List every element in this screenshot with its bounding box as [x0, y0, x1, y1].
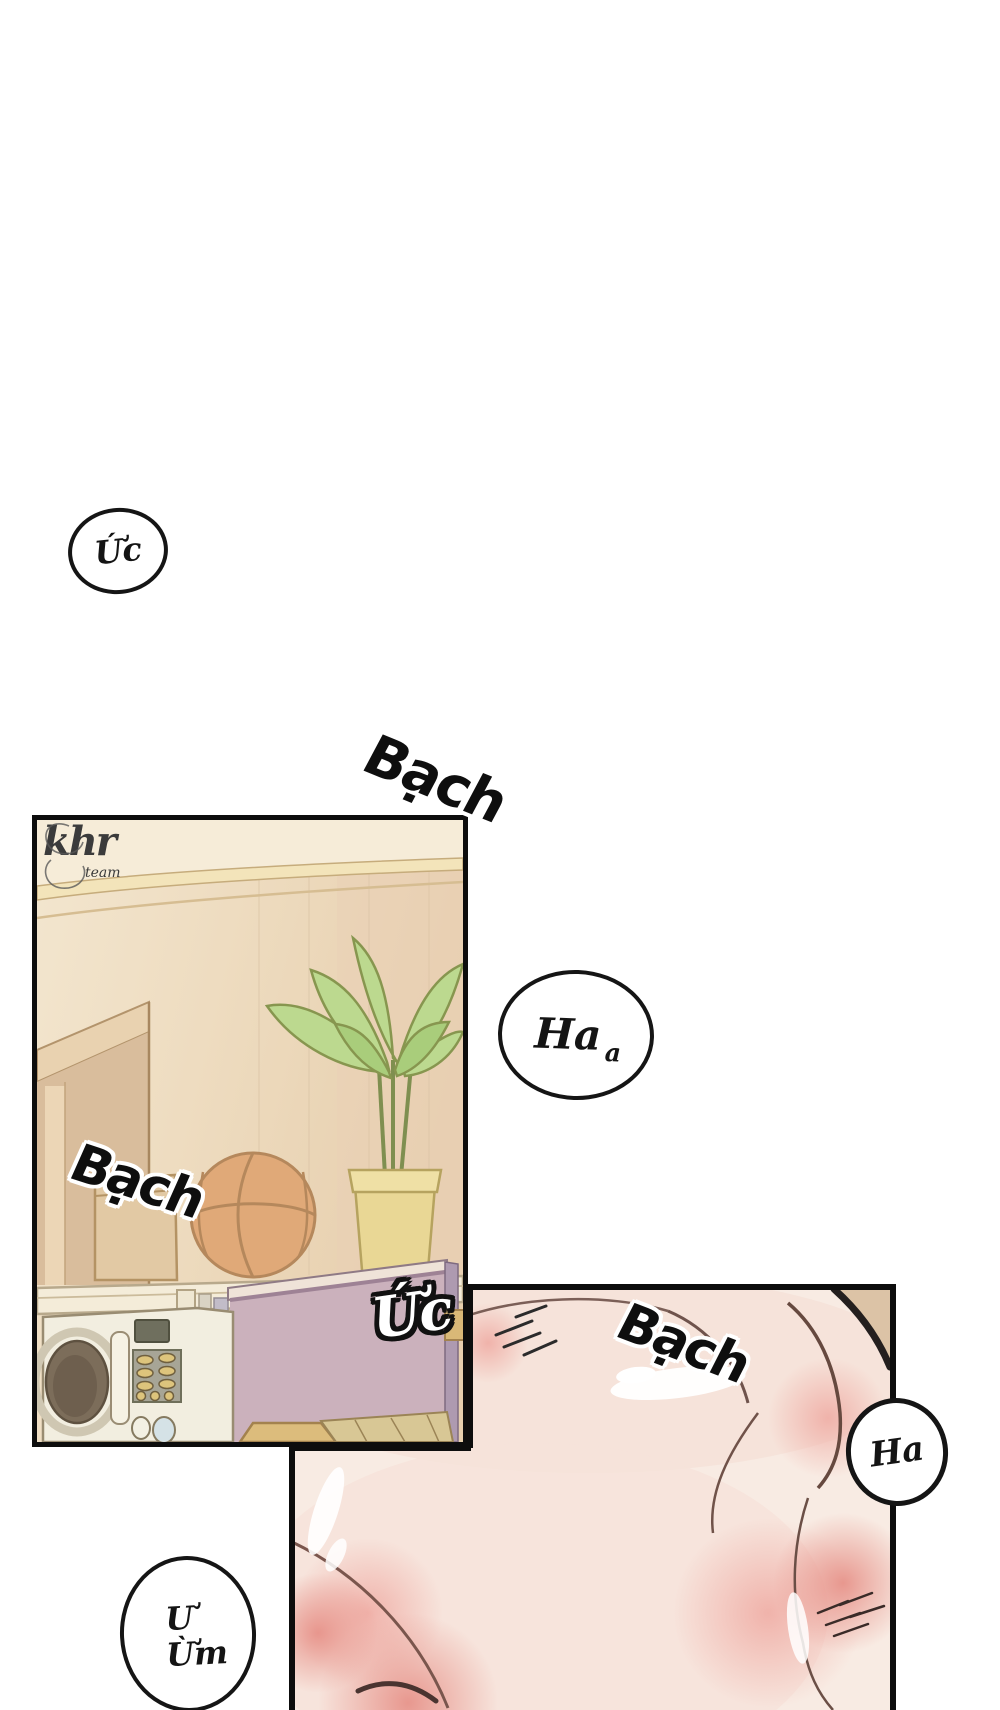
- watermark-flourish: [39, 816, 109, 896]
- basketball: [191, 1153, 315, 1277]
- bubble-ha-text: Ha: [868, 1431, 926, 1472]
- bubble-uc-text: Ức: [93, 533, 143, 570]
- bubble-ha-a-sub: a: [604, 1040, 621, 1066]
- sfx-uc-room: Ức: [368, 1281, 454, 1347]
- speech-bubble-u-um: Ư Ừm: [116, 1553, 260, 1710]
- microwave-display: [135, 1320, 169, 1342]
- bubble-u-um-line2: Ừm: [165, 1636, 228, 1671]
- watermark-sub: team: [85, 866, 121, 880]
- bubble-ha-a-main: Ha: [534, 1013, 602, 1057]
- microwave: [37, 1308, 233, 1442]
- scanlation-watermark: khr team: [43, 822, 115, 862]
- bubble-u-um-line1: Ư: [164, 1602, 194, 1635]
- speech-bubble-ha-a: Ha a: [496, 967, 656, 1102]
- comic-page: khr team: [0, 0, 1000, 1710]
- speech-bubble-uc: Ức: [64, 503, 172, 599]
